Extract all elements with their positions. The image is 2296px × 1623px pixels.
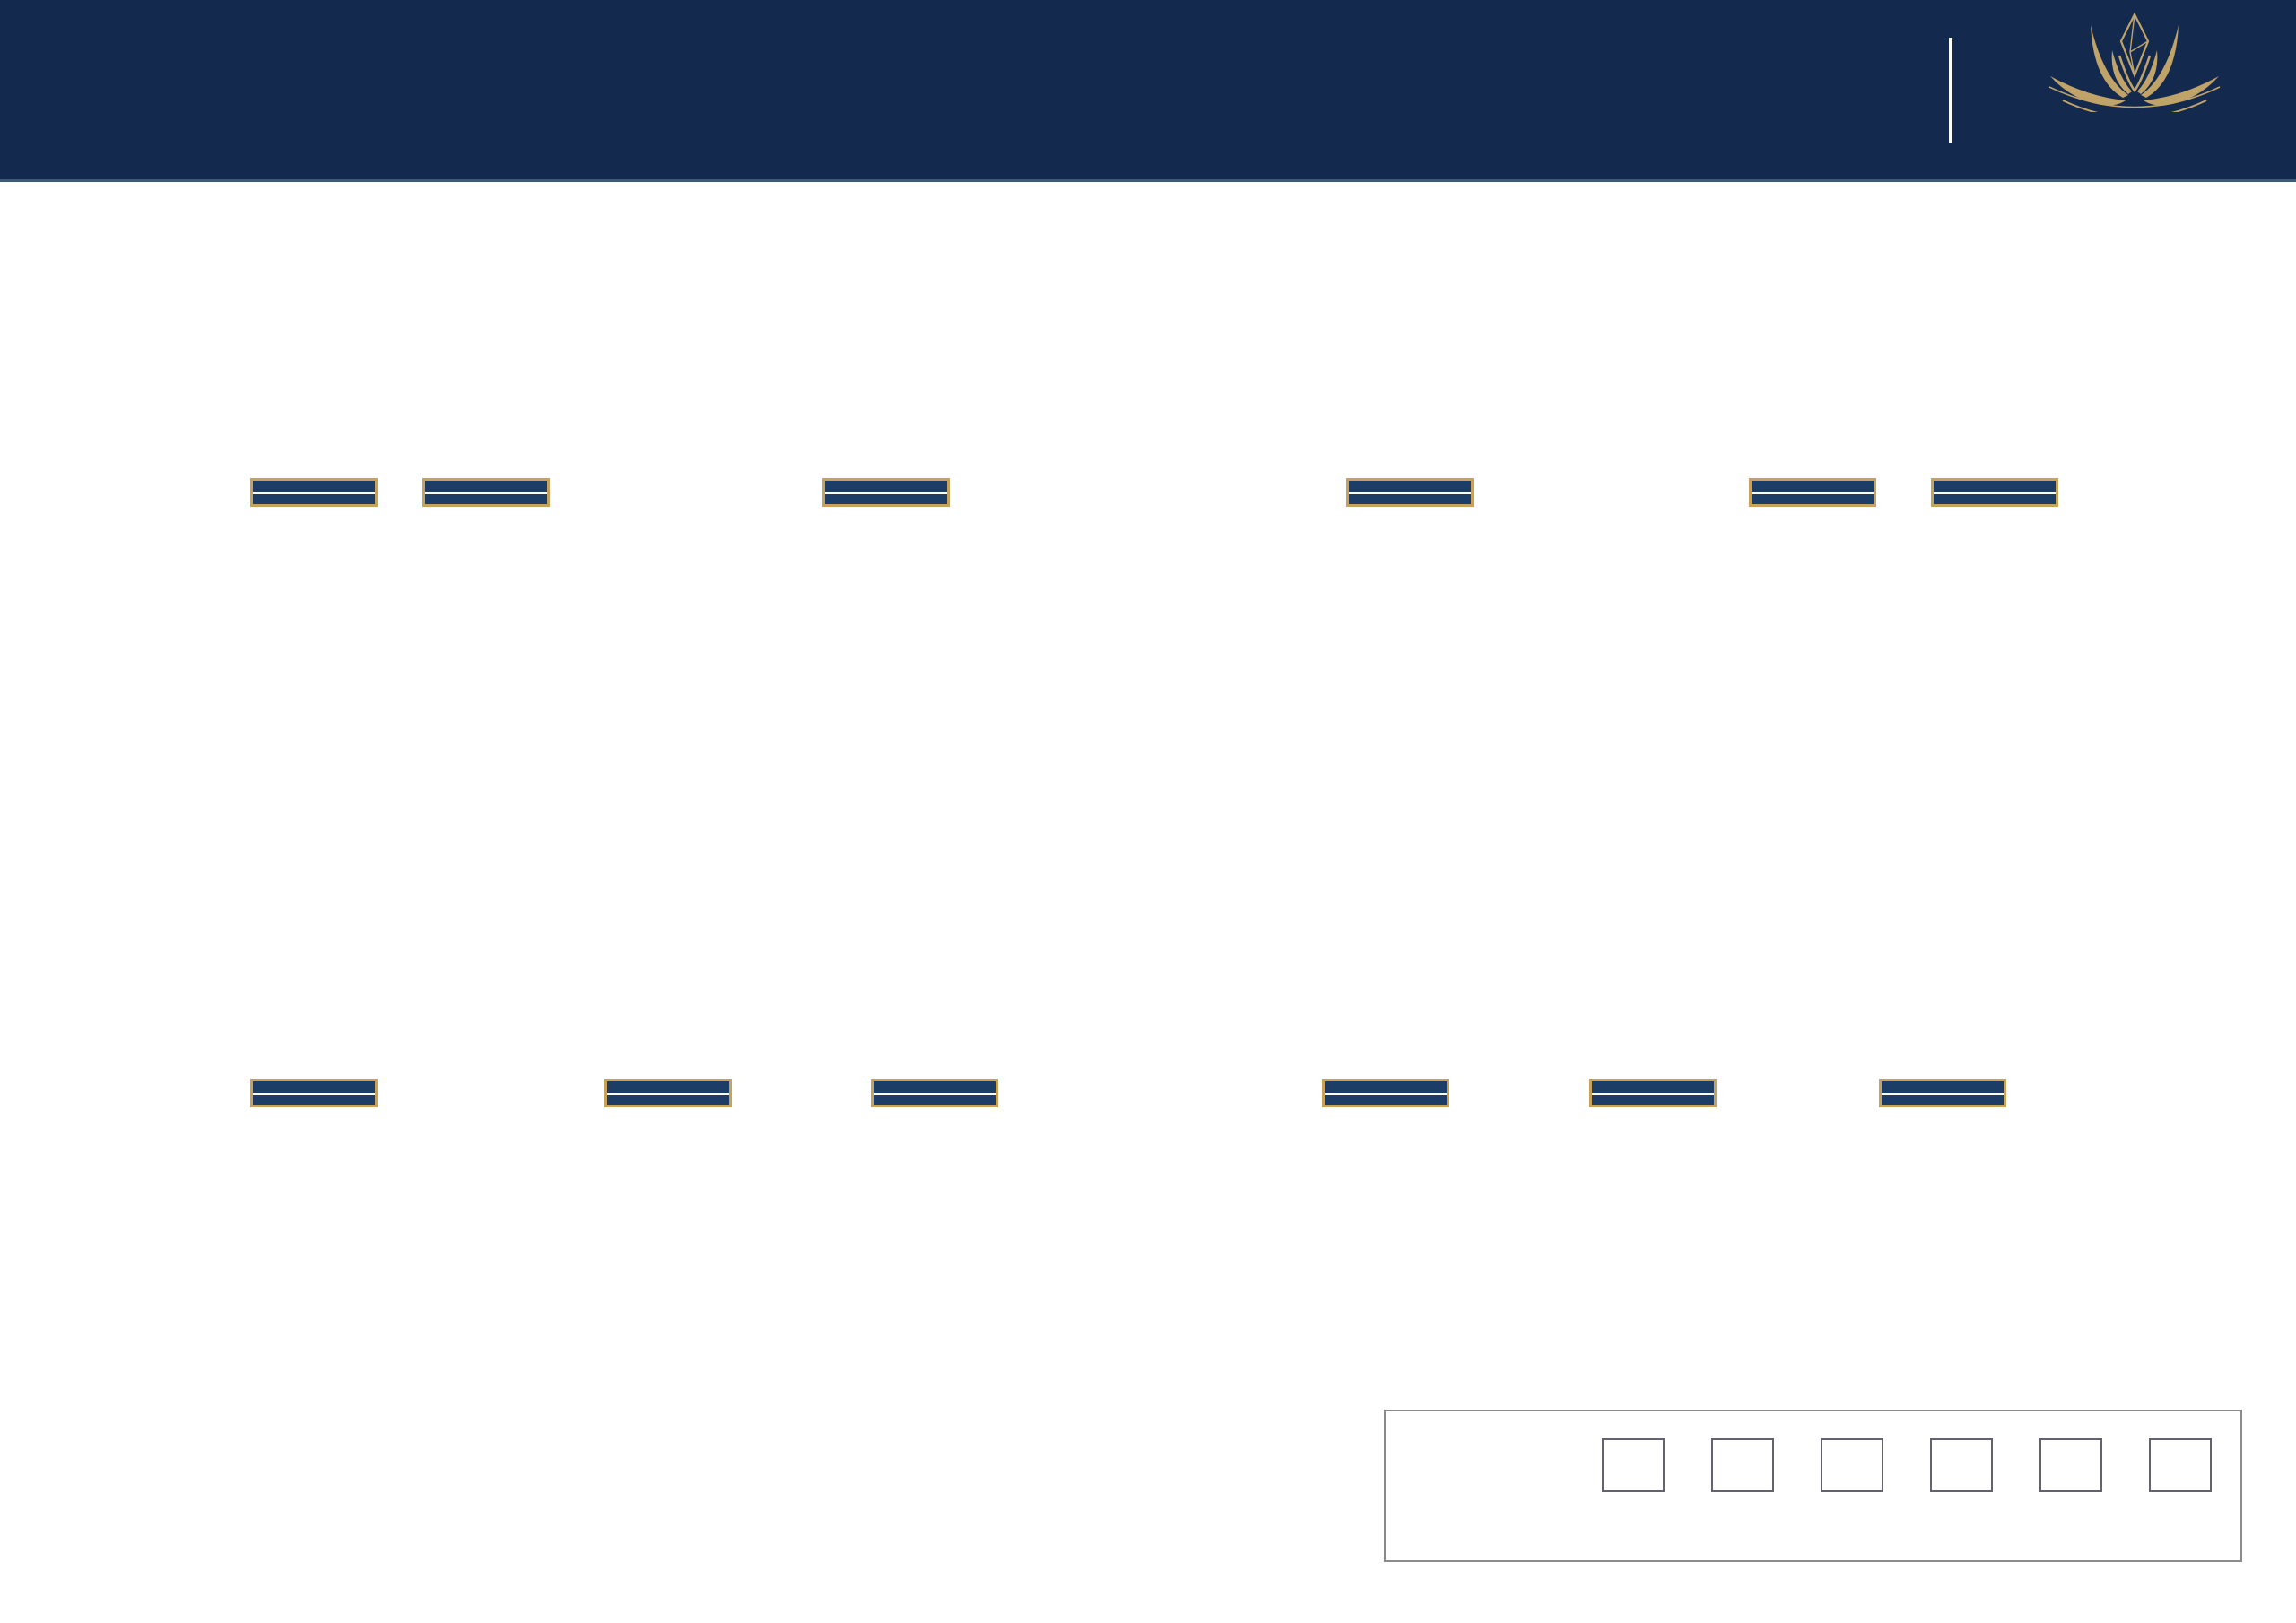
unit-label-ch-01b — [1749, 478, 1876, 507]
unit-code — [425, 481, 547, 494]
unit-code — [1934, 481, 2056, 494]
legend-swatch-ch05 — [2039, 1438, 2102, 1492]
unit-area — [825, 494, 947, 504]
brand-logo — [2027, 0, 2242, 179]
legend-color-row — [1386, 1411, 2240, 1514]
unit-area — [1325, 1095, 1447, 1105]
unit-code — [253, 481, 375, 494]
legend-swatch-ch06 — [2149, 1438, 2212, 1492]
legend-swatch-ch01 — [1602, 1438, 1665, 1492]
unit-code — [1592, 1081, 1714, 1095]
unit-label-ch-02a — [250, 478, 378, 507]
legend-code-row — [1386, 1514, 2240, 1558]
unit-label-ch-06b — [1346, 478, 1474, 507]
unit-area — [253, 1095, 375, 1105]
header-divider — [1949, 38, 1952, 143]
unit-area — [1349, 494, 1471, 504]
unit-label-ch-06a — [822, 478, 950, 507]
unit-area — [1882, 1095, 2004, 1105]
header-bar — [0, 0, 2296, 182]
unit-area — [1752, 494, 1874, 504]
unit-code — [1325, 1081, 1447, 1095]
unit-code — [607, 1081, 729, 1095]
unit-label-ch-05b — [1322, 1079, 1449, 1107]
unit-label-ch-05a — [871, 1079, 998, 1107]
unit-area — [607, 1095, 729, 1105]
unit-code — [1882, 1081, 2004, 1095]
unit-code — [253, 1081, 375, 1095]
unit-area — [1592, 1095, 1714, 1105]
unit-label-ch-04a — [604, 1079, 732, 1107]
unit-code — [1752, 481, 1874, 494]
legend-swatch-ch04 — [1930, 1438, 1993, 1492]
floor-plan-page: { "header": { "title": "MẶT BẰNG TẦNG 6.… — [0, 0, 2296, 1623]
unit-area — [253, 494, 375, 504]
legend-swatch-ch03 — [1821, 1438, 1883, 1492]
unit-label-ch-04b — [1589, 1079, 1717, 1107]
unit-code — [874, 1081, 996, 1095]
unit-label-ch-02b — [1931, 478, 2058, 507]
unit-label-ch-01a — [422, 478, 550, 507]
unit-area — [1934, 494, 2056, 504]
legend-box — [1384, 1410, 2242, 1562]
legend-swatch-ch02 — [1711, 1438, 1774, 1492]
unit-area — [874, 1095, 996, 1105]
unit-label-ch-03b — [1879, 1079, 2006, 1107]
floor-plan-canvas — [0, 0, 2296, 1623]
unit-label-ch-03a — [250, 1079, 378, 1107]
unit-code — [1349, 481, 1471, 494]
lotus-icon — [2027, 0, 2242, 112]
unit-area — [425, 494, 547, 504]
unit-code — [825, 481, 947, 494]
